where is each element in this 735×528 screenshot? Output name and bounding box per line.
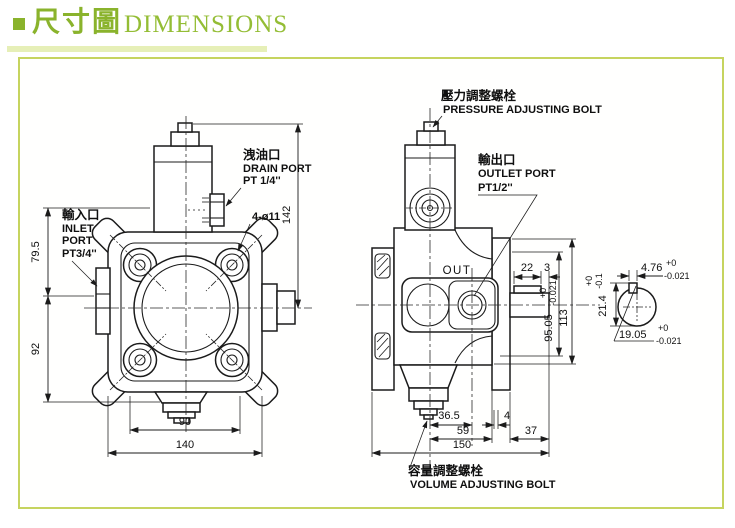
drain-port-boss	[210, 194, 224, 226]
inlet-port-boss	[96, 268, 110, 334]
shaft-boss-front	[277, 291, 295, 324]
dim-front-bolt-spacing: 90	[179, 416, 191, 428]
pressure-adjusting-bolt	[417, 131, 445, 145]
drain-label-size: PT 1/4''	[243, 175, 281, 187]
dim-key-width-tol-plus: +0	[666, 258, 676, 268]
dim-front-upper-left: 79.5	[30, 241, 42, 262]
pressure-label-en: PRESSURE ADJUSTING BOLT	[443, 104, 602, 116]
out-marking: OUT	[443, 265, 472, 277]
outlet-label-en: OUTLET PORT	[478, 168, 556, 180]
dim-key-to-end: 3	[544, 262, 550, 274]
outlet-label-size: PT1/2''	[478, 182, 513, 194]
volume-label-en: VOLUME ADJUSTING BOLT	[410, 479, 556, 491]
keyway-notch	[629, 283, 637, 293]
dim-flat-height: 21.4	[597, 295, 609, 316]
dim-key-width: 4.76	[641, 262, 662, 274]
dimensions-drawing: 79.5 92 142 90 140 輸入口 INLET PORT PT3/4'…	[0, 0, 735, 528]
outlet-label-zh: 輸出口	[478, 152, 516, 167]
volume-adjusting-bolt	[409, 388, 448, 401]
dim-overall-length: 150	[453, 439, 471, 451]
shaft-detail: 21.4 +0 -0.1 4.76 +0 -0.021 19.05 +0 -0.…	[584, 258, 690, 346]
page: { "header": { "title_zh": "尺寸圖", "title_…	[0, 0, 735, 528]
inlet-label-zh: 輸入口	[62, 207, 100, 222]
inlet-label-size: PT3/4''	[62, 248, 97, 260]
dim-center-height-tol-minus: -0.021	[548, 280, 558, 306]
inlet-label-en2: PORT	[62, 235, 93, 247]
shaft-key	[514, 286, 541, 293]
spring-cover-front	[154, 146, 212, 232]
dim-gap: 4	[504, 410, 510, 422]
pressure-label-zh: 壓力調整螺栓	[441, 88, 517, 103]
dim-key-length: 22	[521, 262, 533, 274]
dim-flat-height-tol-minus: -0.1	[594, 273, 604, 289]
dim-front-overall-width: 140	[176, 439, 194, 451]
dim-total-height: 113	[558, 309, 570, 327]
dim-bolt-offset: 36.5	[438, 410, 459, 422]
dim-body-length: 59	[457, 425, 469, 437]
dim-flat-height-tol-plus: +0	[584, 276, 594, 286]
dim-center-height: 95.05	[543, 314, 555, 342]
drain-label-zh: 洩油口	[243, 147, 281, 162]
dim-key-width-tol-minus: -0.021	[664, 271, 690, 281]
dim-front-overall-height: 142	[281, 206, 293, 224]
dim-front-lower-left: 92	[30, 343, 42, 355]
dim-rear-length: 37	[525, 425, 537, 437]
mount-holes-label: 4-ø11	[252, 211, 280, 223]
inlet-label-en1: INLET	[62, 223, 94, 235]
drain-label-en: DRAIN PORT	[243, 163, 312, 175]
volume-label-zh: 容量調整螺栓	[407, 463, 484, 478]
dim-center-height-tol-plus: +0	[538, 288, 548, 298]
dim-shaft-diameter: 19.05	[619, 329, 647, 341]
dim-shaft-diameter-tol-plus: +0	[658, 323, 668, 333]
dim-shaft-diameter-tol-minus: -0.021	[656, 336, 682, 346]
